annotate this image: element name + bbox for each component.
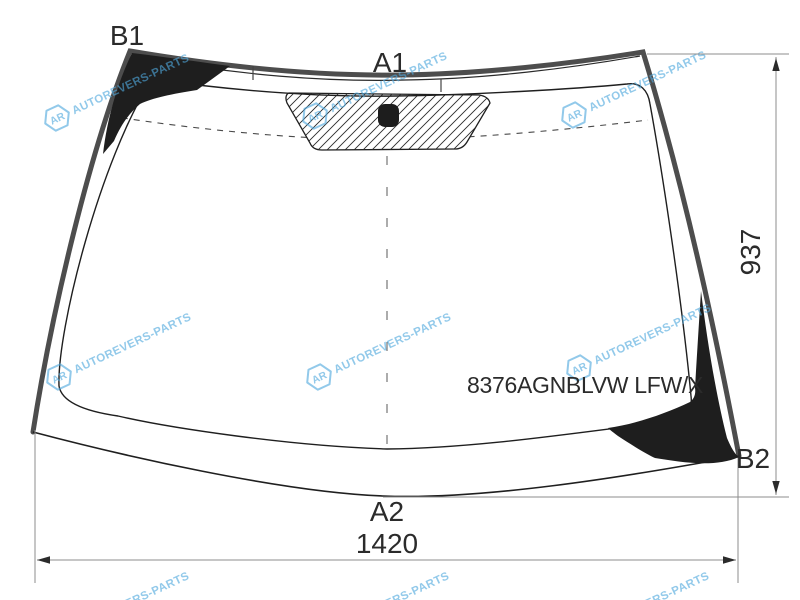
label-b2: B2 (736, 443, 770, 474)
watermark: ARAUTOREVERS-PARTS (563, 297, 716, 384)
part-number: 8376AGNBLVW LFW/X (467, 372, 703, 398)
sensor-camera-dot (378, 104, 399, 127)
watermark-monogram: AR (50, 369, 69, 386)
windshield-diagram: ARAUTOREVERS-PARTSARAUTOREVERS-PARTSARAU… (0, 0, 800, 600)
watermark: ARAUTOREVERS-PARTS (43, 306, 196, 393)
watermark: ARAUTOREVERS-PARTS (303, 306, 456, 393)
label-b1: B1 (110, 20, 144, 51)
watermark-monogram: AR (48, 110, 67, 127)
watermark-brand-text: AUTOREVERS-PARTS (72, 311, 193, 376)
watermark-brand-text: AUTOREVERS-PARTS (330, 570, 451, 600)
windshield-diagram-page: ARAUTOREVERS-PARTSARAUTOREVERS-PARTSARAU… (0, 0, 800, 600)
watermark-monogram: AR (310, 369, 329, 386)
arrowhead-right-icon (723, 556, 736, 564)
arrowhead-left-icon (37, 556, 50, 564)
arrowhead-down-icon (772, 481, 779, 494)
watermark: ARAUTOREVERS-PARTS (41, 565, 194, 600)
watermark: ARAUTOREVERS-PARTS (561, 565, 714, 600)
watermark-brand-text: AUTOREVERS-PARTS (70, 570, 191, 600)
watermark-brand-text: AUTOREVERS-PARTS (590, 570, 711, 600)
watermark-brand-text: AUTOREVERS-PARTS (332, 311, 453, 376)
watermark-brand-text: AUTOREVERS-PARTS (592, 302, 713, 367)
watermark-monogram: AR (565, 107, 584, 124)
label-a2: A2 (370, 496, 404, 527)
arrowhead-up-icon (772, 58, 779, 71)
dimension-width-value: 1420 (356, 528, 418, 559)
label-a1: A1 (373, 47, 407, 78)
dimension-height-value: 937 (735, 229, 766, 276)
watermark: ARAUTOREVERS-PARTS (301, 565, 454, 600)
